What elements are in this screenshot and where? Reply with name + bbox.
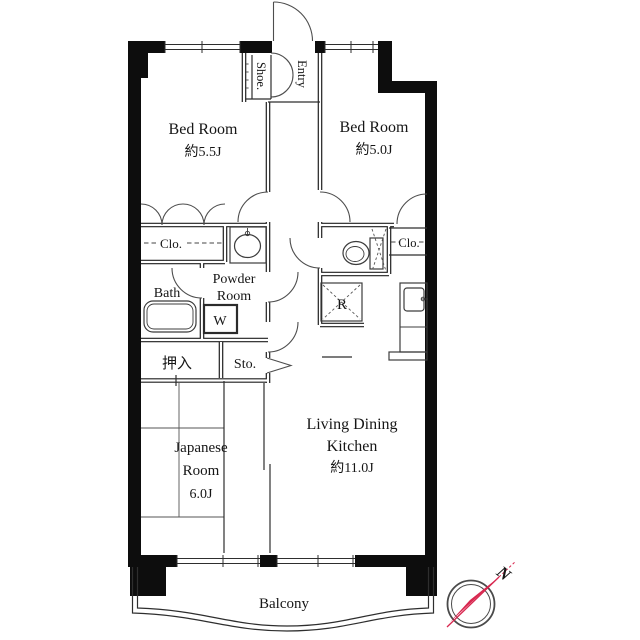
entry-label: Entry bbox=[295, 60, 309, 89]
japanese-room-area: 6.0J bbox=[190, 487, 214, 502]
kitchen-sink-icon bbox=[389, 283, 428, 360]
compass-icon: N bbox=[447, 561, 516, 628]
powder-room-label-2: Room bbox=[217, 289, 251, 304]
balcony-label: Balcony bbox=[259, 596, 309, 612]
washbasin-icon bbox=[230, 227, 266, 263]
bedroom-b-door bbox=[320, 192, 350, 222]
bedroom-a-door bbox=[238, 192, 268, 222]
storage-label: Sto. bbox=[234, 357, 256, 372]
entrance-door bbox=[274, 2, 313, 41]
ldk-area: 約11.0J bbox=[330, 460, 374, 476]
toilet-door bbox=[290, 238, 320, 268]
closet-right-label: Clo. bbox=[398, 236, 419, 250]
bath-label: Bath bbox=[154, 286, 180, 301]
compass-north-label: N bbox=[492, 562, 515, 586]
refrigerator-label: R bbox=[337, 297, 347, 313]
japanese-room-label-2: Room bbox=[183, 463, 220, 479]
bedroom-a-area: 約5.5J bbox=[185, 144, 222, 160]
storage-folding-door bbox=[267, 358, 291, 373]
closet-left-label: Clo. bbox=[160, 236, 182, 251]
shoe-label: Shoe. bbox=[254, 62, 268, 90]
powder-room-label-1: Powder bbox=[213, 272, 256, 287]
window-top-right bbox=[325, 41, 378, 53]
ldk-label-1: Living Dining bbox=[306, 416, 397, 433]
closet-right-door bbox=[397, 194, 427, 224]
powder-room-door bbox=[268, 272, 298, 302]
bedroom-a-label: Bed Room bbox=[169, 121, 238, 138]
washer-label: W bbox=[213, 314, 227, 329]
bedroom-b-label: Bed Room bbox=[340, 119, 409, 136]
floor-plan-svg: N Bed Room 約5.5J Bed Room 約5.0J Shoe. En… bbox=[0, 0, 640, 640]
window-top-left bbox=[165, 41, 240, 53]
oshiire-label: 押入 bbox=[162, 355, 192, 372]
bedroom-b-area: 約5.0J bbox=[356, 142, 393, 158]
room-labels: Bed Room 約5.5J Bed Room 約5.0J Shoe. Entr… bbox=[154, 60, 420, 612]
ldk-label-2: Kitchen bbox=[327, 438, 378, 455]
window-bottom-left bbox=[177, 555, 260, 567]
closet-left-doors bbox=[141, 204, 225, 225]
ldk-door bbox=[268, 322, 298, 352]
floor-plan: N Bed Room 約5.5J Bed Room 約5.0J Shoe. En… bbox=[0, 0, 640, 640]
window-bottom-right bbox=[277, 555, 355, 567]
sliding-doors bbox=[264, 383, 270, 553]
bathtub-icon bbox=[144, 301, 196, 332]
japanese-room-label-1: Japanese bbox=[174, 440, 228, 456]
toilet-icon bbox=[343, 229, 386, 271]
shoe-cabinet-doors bbox=[271, 53, 293, 97]
partition-walls bbox=[141, 53, 394, 383]
